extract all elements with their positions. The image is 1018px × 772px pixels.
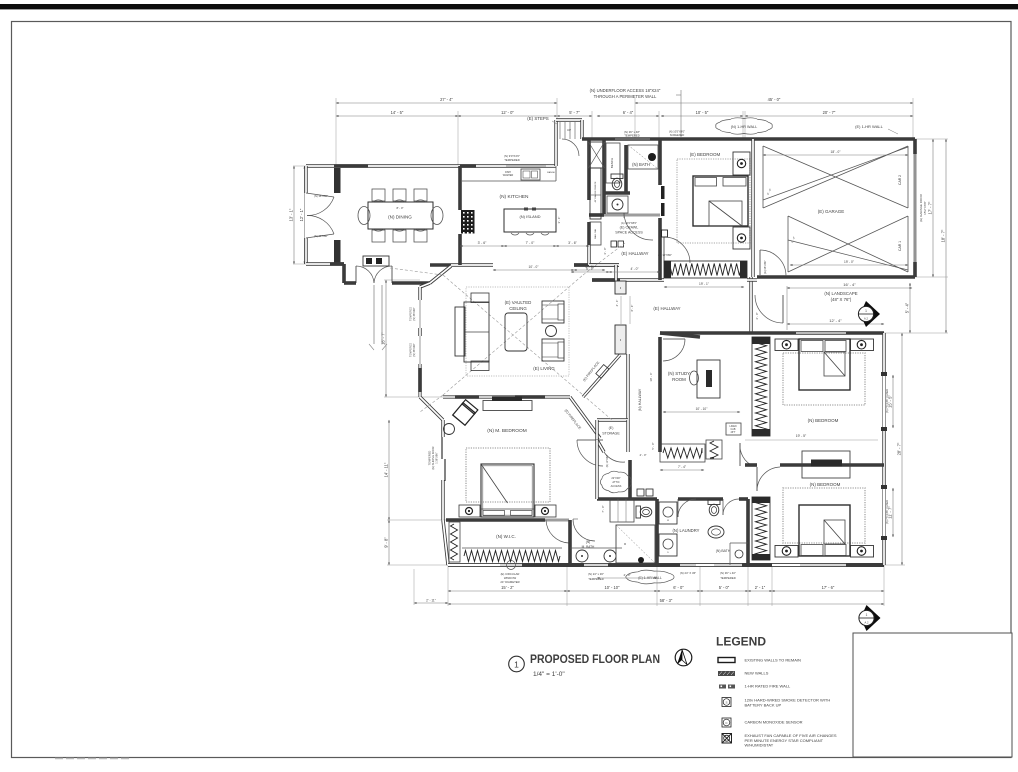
svg-text:(E) LIVING: (E) LIVING bbox=[533, 366, 555, 371]
svg-text:(N) 36"X80": (N) 36"X80" bbox=[314, 194, 328, 198]
svg-text:A.2: A.2 bbox=[864, 317, 868, 321]
svg-text:(N) M. BEDROOM: (N) M. BEDROOM bbox=[487, 428, 526, 434]
svg-text:(E) VAULTED: (E) VAULTED bbox=[505, 300, 532, 305]
svg-text:(N) 24" x 36": (N) 24" x 36" bbox=[588, 572, 604, 576]
svg-text:(N) 24" X 36": (N) 24" X 36" bbox=[680, 571, 696, 575]
svg-text:1/4" = 1'-0": 1/4" = 1'-0" bbox=[533, 671, 565, 678]
svg-text:(N) 12"X80": (N) 12"X80" bbox=[606, 455, 609, 468]
svg-text:TEMPERED: TEMPERED bbox=[720, 576, 736, 580]
svg-text:(N) 1-HR WALL: (N) 1-HR WALL bbox=[731, 125, 757, 129]
svg-text:4' - 0": 4' - 0" bbox=[630, 267, 638, 271]
svg-text:(48" X 76"): (48" X 76") bbox=[831, 297, 852, 302]
svg-text:M: M bbox=[624, 543, 626, 546]
svg-text:(E) 1-HR WALL: (E) 1-HR WALL bbox=[855, 124, 883, 129]
svg-text:(N) DINING: (N) DINING bbox=[388, 215, 412, 220]
svg-text:(N) LANDSCAPE: (N) LANDSCAPE bbox=[824, 291, 857, 296]
svg-text:(N) 10'5"X8'0": (N) 10'5"X8'0" bbox=[669, 130, 685, 134]
svg-text:S: S bbox=[725, 701, 727, 705]
svg-text:(N) BATH: (N) BATH bbox=[716, 549, 731, 553]
svg-text:THROUGH A PERIMETER WALL: THROUGH A PERIMETER WALL bbox=[594, 94, 657, 99]
svg-text:5' - 4": 5' - 4" bbox=[905, 302, 910, 313]
svg-text:SCREENED: SCREENED bbox=[670, 133, 685, 137]
svg-text:3' - 0": 3' - 0" bbox=[557, 217, 561, 224]
svg-text:CAR 2: CAR 2 bbox=[898, 175, 902, 185]
svg-text:27' - 4": 27' - 4" bbox=[440, 97, 453, 102]
svg-text:5' - 7": 5' - 7" bbox=[569, 110, 580, 115]
svg-text:(A) 10'0"X8'0": (A) 10'0"X8'0" bbox=[621, 221, 637, 225]
svg-text:7' - 0": 7' - 0" bbox=[526, 241, 535, 245]
svg-text:(N) ISLAND: (N) ISLAND bbox=[519, 214, 540, 219]
svg-text:16' - 7": 16' - 7" bbox=[381, 332, 386, 345]
svg-text:(E): (E) bbox=[609, 426, 614, 430]
svg-text:(E) STEPS: (E) STEPS bbox=[527, 116, 549, 121]
svg-text:6' - 9": 6' - 9" bbox=[630, 305, 634, 312]
svg-text:4' - 0": 4' - 0" bbox=[615, 300, 619, 307]
svg-text:7' - 4": 7' - 4" bbox=[678, 465, 686, 469]
svg-text:(N) 36" x 40": (N) 36" x 40" bbox=[720, 571, 736, 575]
svg-text:1: 1 bbox=[866, 613, 868, 617]
svg-text:(N) BEDROOM: (N) BEDROOM bbox=[810, 482, 841, 487]
svg-text:5' - 0": 5' - 0" bbox=[719, 585, 730, 590]
svg-text:1-HR RATED FIRE WALL: 1-HR RATED FIRE WALL bbox=[745, 684, 792, 689]
svg-text:6' - 4": 6' - 4" bbox=[623, 110, 634, 115]
svg-text:1 36"X80": 1 36"X80" bbox=[435, 452, 439, 464]
svg-text:10' - 10": 10' - 10" bbox=[696, 407, 708, 411]
svg-text:(E) BEDROOM: (E) BEDROOM bbox=[690, 152, 721, 157]
svg-text:TEMPERED: TEMPERED bbox=[428, 451, 432, 466]
svg-text:CAR 1: CAR 1 bbox=[898, 241, 902, 251]
svg-text:(E) GARAGE: (E) GARAGE bbox=[818, 209, 845, 214]
svg-text:W: W bbox=[667, 520, 670, 522]
svg-text:ATTIC: ATTIC bbox=[612, 480, 619, 484]
svg-text:12' - 4": 12' - 4" bbox=[829, 318, 842, 323]
svg-text:TEMPERED: TEMPERED bbox=[504, 158, 520, 162]
svg-text:22"X30": 22"X30" bbox=[611, 476, 620, 480]
svg-text:STORAGE: STORAGE bbox=[602, 432, 620, 436]
svg-text:(E) SLIDING DOOR: (E) SLIDING DOOR bbox=[431, 446, 435, 469]
svg-text:20' - 7": 20' - 7" bbox=[823, 110, 836, 115]
svg-text:15' - 2": 15' - 2" bbox=[501, 585, 514, 590]
svg-text:14' - 5": 14' - 5" bbox=[391, 110, 404, 115]
svg-text:(N) STUDY: (N) STUDY bbox=[668, 371, 690, 376]
svg-text:4' - 0": 4' - 0" bbox=[639, 453, 646, 457]
svg-text:19' - 5": 19' - 5" bbox=[796, 434, 807, 438]
svg-text:8' - 0": 8' - 0" bbox=[396, 206, 403, 210]
svg-text:45' - 0": 45' - 0" bbox=[768, 97, 781, 102]
svg-text:UP: UP bbox=[567, 128, 571, 132]
svg-text:58' - 3": 58' - 3" bbox=[660, 598, 673, 603]
svg-text:EXISTING WALLS TO REMAIN: EXISTING WALLS TO REMAIN bbox=[745, 658, 801, 663]
svg-text:(N) UNDERFLOOR ACCESS 18"X24": (N) UNDERFLOOR ACCESS 18"X24" bbox=[590, 88, 661, 93]
svg-text:9' - 8": 9' - 8" bbox=[384, 537, 389, 548]
svg-text:(N) BATH: (N) BATH bbox=[632, 162, 650, 167]
svg-text:(E) 36"X80": (E) 36"X80" bbox=[763, 260, 767, 274]
svg-text:RANGE: RANGE bbox=[547, 171, 555, 174]
svg-text:6' - 0": 6' - 0" bbox=[673, 585, 684, 590]
svg-text:(N) BEDROOM: (N) BEDROOM bbox=[808, 418, 839, 423]
svg-text:(N) 36"X80": (N) 36"X80" bbox=[314, 234, 328, 238]
svg-text:BATTERY BACK UP: BATTERY BACK UP bbox=[745, 703, 782, 708]
svg-text:WASHER: WASHER bbox=[503, 174, 514, 177]
svg-text:(N) HALLWAY: (N) HALLWAY bbox=[638, 388, 642, 411]
svg-text:(N) 36"X48": (N) 36"X48" bbox=[413, 343, 416, 356]
svg-text:(N) LAUNDRY: (N) LAUNDRY bbox=[673, 528, 700, 533]
svg-text:19' - 1": 19' - 1" bbox=[699, 282, 709, 286]
svg-text:1: 1 bbox=[865, 309, 867, 313]
svg-text:10' - 4": 10' - 4" bbox=[649, 372, 653, 381]
svg-text:28' - 7": 28' - 7" bbox=[897, 442, 902, 455]
svg-text:W/HUMIDISTAT: W/HUMIDISTAT bbox=[745, 743, 774, 748]
svg-text:NEW WALLS: NEW WALLS bbox=[745, 671, 769, 676]
svg-text:TEMPERED: TEMPERED bbox=[410, 307, 413, 321]
svg-text:14' - 11": 14' - 11" bbox=[384, 462, 389, 477]
svg-text:48" RANGE FREEZE: 48" RANGE FREEZE bbox=[594, 181, 597, 202]
svg-text:2' - 11": 2' - 11" bbox=[426, 599, 436, 603]
svg-text:18' - 7": 18' - 7" bbox=[941, 229, 946, 242]
svg-text:3' - 6": 3' - 6" bbox=[478, 241, 487, 245]
svg-text:7' - 4": 7' - 4" bbox=[790, 236, 796, 244]
svg-text:3' - 6": 3' - 6" bbox=[568, 241, 577, 245]
svg-text:7' - 0": 7' - 0" bbox=[601, 505, 605, 512]
svg-text:17' - 7": 17' - 7" bbox=[928, 201, 933, 214]
svg-text:24" DIAMETER: 24" DIAMETER bbox=[500, 580, 519, 584]
svg-text:19' - 0": 19' - 0" bbox=[844, 260, 854, 264]
svg-text:16' - 4": 16' - 4" bbox=[843, 282, 856, 287]
svg-text:4' - 0": 4' - 0" bbox=[755, 312, 759, 319]
svg-text:5' - 0": 5' - 0" bbox=[651, 442, 655, 449]
svg-text:ROOM: ROOM bbox=[672, 377, 686, 382]
svg-text:BENCH: BENCH bbox=[610, 158, 614, 169]
svg-text:(E) HALLWAY: (E) HALLWAY bbox=[653, 306, 680, 311]
svg-text:CARBON MONOXIDE SENSOR: CARBON MONOXIDE SENSOR bbox=[745, 720, 803, 725]
svg-text:D: D bbox=[667, 552, 669, 554]
svg-text:(N): (N) bbox=[586, 540, 590, 544]
svg-text:13' - 1": 13' - 1" bbox=[289, 208, 294, 221]
svg-text:10' - 5": 10' - 5" bbox=[696, 110, 709, 115]
svg-text:(E) CRAWL: (E) CRAWL bbox=[620, 226, 639, 230]
svg-text:(N) 36"X48": (N) 36"X48" bbox=[413, 307, 416, 320]
svg-text:C: C bbox=[725, 721, 728, 725]
svg-text:(N) 32"X80": (N) 32"X80" bbox=[658, 253, 672, 257]
svg-text:(E) HALLWAY: (E) HALLWAY bbox=[621, 251, 648, 256]
svg-text:PROPOSED FLOOR PLAN: PROPOSED FLOOR PLAN bbox=[530, 652, 660, 666]
svg-text:TEMPERED: TEMPERED bbox=[588, 577, 604, 581]
svg-text:12' - 1": 12' - 1" bbox=[299, 208, 304, 221]
svg-text:18' - 0": 18' - 0" bbox=[831, 150, 841, 154]
svg-text:1: 1 bbox=[514, 660, 519, 670]
svg-text:LEGEND: LEGEND bbox=[716, 635, 766, 649]
svg-text:WALL CAB: WALL CAB bbox=[594, 228, 597, 239]
svg-text:A.2: A.2 bbox=[865, 621, 869, 625]
svg-text:CEILING: CEILING bbox=[509, 306, 527, 311]
svg-text:10' - 0": 10' - 0" bbox=[529, 265, 539, 269]
svg-text:2' - 1": 2' - 1" bbox=[755, 585, 766, 590]
svg-text:TEMPERED: TEMPERED bbox=[410, 343, 413, 357]
svg-text:15'2"X6'8": 15'2"X6'8" bbox=[923, 201, 927, 215]
svg-text:(N) KITCHEN: (N) KITCHEN bbox=[499, 194, 529, 200]
svg-text:(N) W.I.C.: (N) W.I.C. bbox=[496, 534, 516, 539]
svg-text:8' - 9": 8' - 9" bbox=[766, 188, 773, 196]
svg-text:M. BATH: M. BATH bbox=[582, 545, 595, 549]
svg-text:SPACE ACCESS: SPACE ACCESS bbox=[615, 231, 643, 235]
svg-text:ACCESS: ACCESS bbox=[611, 484, 622, 488]
svg-text:17' - 6": 17' - 6" bbox=[822, 585, 835, 590]
svg-text:4' - 0": 4' - 0" bbox=[623, 573, 630, 577]
svg-text:3' - 0": 3' - 0" bbox=[603, 247, 607, 254]
svg-text:46"T: 46"T bbox=[731, 431, 737, 434]
svg-text:12' - 0": 12' - 0" bbox=[501, 110, 514, 115]
svg-text:10' - 10": 10' - 10" bbox=[605, 585, 621, 590]
svg-text:TEMPERED: TEMPERED bbox=[624, 134, 640, 138]
